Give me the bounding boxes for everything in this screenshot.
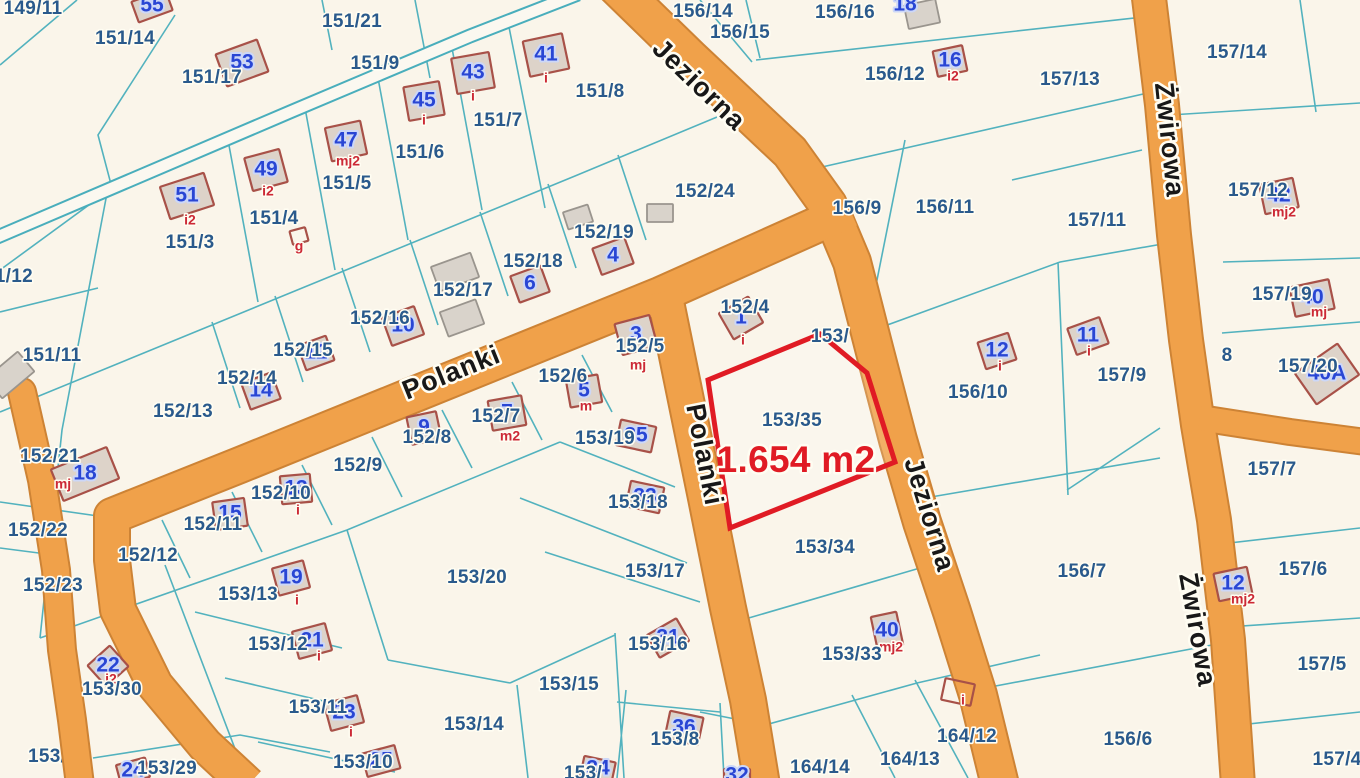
- parcel-label: 151/11: [23, 345, 82, 366]
- building-type-label: i: [317, 648, 321, 664]
- parcel-label: 152/15: [273, 340, 333, 361]
- building-number-label: 32: [725, 764, 748, 778]
- parcel-label: 153/18: [608, 492, 668, 513]
- parcel-label: 152/18: [503, 251, 563, 272]
- building-number-label: 47: [334, 129, 357, 152]
- building-type-label: i: [349, 724, 353, 740]
- building-type-label: m2: [500, 428, 520, 444]
- parcel-label: 153/: [811, 326, 850, 347]
- parcel-label: 153/: [564, 763, 603, 778]
- building-type-label: g: [295, 238, 304, 254]
- parcel-label: 153/17: [625, 561, 685, 582]
- parcel-label: 157/19: [1252, 284, 1312, 305]
- parcel-label: 157/11: [1068, 210, 1127, 231]
- parcel-label: 153/20: [447, 567, 507, 588]
- building-number-label: 49: [254, 158, 277, 181]
- building-type-label: i2: [262, 183, 274, 199]
- parcel-label: 156/10: [948, 382, 1008, 403]
- parcel-label: 156/15: [710, 22, 770, 43]
- parcel-label: 152/22: [8, 520, 68, 541]
- building-type-label: mj2: [336, 153, 360, 169]
- parcel-label: 153/12: [248, 634, 308, 655]
- building-type-label: i2: [184, 212, 196, 228]
- parcel-label: 152/21: [20, 446, 80, 467]
- building-type-label: mj: [1311, 304, 1327, 320]
- parcel-label: 151/5: [322, 173, 371, 194]
- building-type-label: i: [961, 692, 965, 708]
- parcel-label: 153/16: [628, 634, 688, 655]
- parcel-label: 164/14: [790, 757, 850, 778]
- building-type-label: mj2: [1231, 591, 1255, 607]
- parcel-label: 153/34: [795, 537, 855, 558]
- building-footprint: [647, 204, 673, 222]
- building-type-label: i: [296, 502, 300, 518]
- building-number-label: 12: [985, 339, 1008, 362]
- parcel-label: 151/9: [350, 53, 399, 74]
- building-type-label: i: [295, 592, 299, 608]
- building-type-label: m: [580, 398, 592, 414]
- parcel-label: 152/7: [471, 406, 520, 427]
- parcel-label: 152/16: [350, 308, 410, 329]
- parcel-label: 153/29: [137, 758, 197, 778]
- parcel-label: 153/30: [82, 679, 142, 700]
- parcel-label: 153/35: [762, 410, 822, 431]
- parcel-label: 157/7: [1247, 459, 1296, 480]
- parcel-label: 156/11: [916, 197, 975, 218]
- parcel-label: 151/17: [182, 67, 242, 88]
- parcel-label: 152/9: [333, 455, 382, 476]
- parcel-label: 151/4: [249, 208, 298, 229]
- parcel-label: 149/11: [4, 0, 63, 19]
- building-type-label: i: [471, 88, 475, 104]
- building-number-label: 55: [140, 0, 164, 17]
- parcel-label: 151/6: [395, 142, 444, 163]
- parcel-label: 152/24: [675, 181, 735, 202]
- parcel-label: 151/7: [473, 110, 522, 131]
- parcel-label: 157/4: [1312, 749, 1360, 770]
- building-number-label: 51: [175, 184, 199, 207]
- parcel-label: 153/10: [333, 752, 393, 773]
- parcel-label: 151/14: [95, 28, 155, 49]
- parcel-label: 152/8: [402, 427, 451, 448]
- map-canvas[interactable]: 153/31 555341i43i45i47mj249i251i2g461012…: [0, 0, 1360, 778]
- building-type-label: mj2: [879, 639, 903, 655]
- cadastral-map-view: 153/31 555341i43i45i47mj249i251i2g461012…: [0, 0, 1360, 778]
- parcel-label: 152/23: [23, 575, 83, 596]
- building-type-label: i: [544, 70, 548, 86]
- building-type-label: mj2: [1272, 204, 1296, 220]
- parcel-label: 164/13: [880, 749, 940, 770]
- building-number-label: 4: [607, 244, 619, 267]
- parcel-label: 157/13: [1040, 69, 1100, 90]
- building-number-label: 45: [412, 89, 436, 112]
- parcel-label: 151/12: [0, 266, 33, 287]
- building-number-label: 43: [461, 61, 484, 84]
- parcel-label: 152/13: [153, 401, 213, 422]
- parcel-label: 153/33: [822, 644, 882, 665]
- parcel-label: 152/12: [118, 545, 178, 566]
- parcel-label: 153/14: [444, 714, 504, 735]
- parcel-label: 157/6: [1278, 559, 1327, 580]
- parcel-label: 152/10: [251, 483, 311, 504]
- parcel-label: 157/20: [1278, 356, 1338, 377]
- parcel-label: 152/17: [433, 280, 493, 301]
- building-number-label: 41: [534, 43, 558, 66]
- parcel-label: 153/13: [218, 584, 278, 605]
- parcel-label: 156/9: [832, 198, 881, 219]
- parcel-label: 152/6: [538, 366, 587, 387]
- parcel-label: 152/4: [720, 297, 769, 318]
- parcel-label: 153/8: [650, 729, 699, 750]
- parcel-label: 151/8: [575, 81, 624, 102]
- building-shape: [647, 204, 673, 222]
- parcel-label: 157/12: [1228, 180, 1288, 201]
- building-type-label: i: [422, 112, 426, 128]
- parcel-label: 151/3: [165, 232, 214, 253]
- parcel-label: 156/14: [673, 1, 733, 22]
- building-type-label: i: [741, 332, 745, 348]
- parcel-label: 157/5: [1297, 654, 1346, 675]
- parcel-label: 152/11: [184, 514, 243, 535]
- building-type-label: mj: [630, 357, 646, 373]
- highlight-area-label: 1.654 m2: [717, 439, 876, 480]
- parcel-label: 164/12: [937, 726, 997, 747]
- building-number-label: 6: [524, 272, 536, 295]
- parcel-label: 153/15: [539, 674, 599, 695]
- parcel-label: 153/19: [575, 428, 635, 449]
- parcel-label: 152/5: [615, 336, 664, 357]
- parcel-label: 157/14: [1207, 42, 1267, 63]
- parcel-label: 8: [1222, 345, 1233, 366]
- building-type-label: i2: [947, 68, 959, 84]
- building-type-label: i: [1087, 343, 1091, 359]
- building-number-label: 19: [279, 566, 302, 589]
- building-type-label: i: [998, 358, 1002, 374]
- building-number-label: 18: [893, 0, 917, 16]
- parcel-label: 156/16: [815, 2, 875, 23]
- parcel-label: 157/9: [1097, 365, 1146, 386]
- parcel-label: 156/12: [865, 64, 925, 85]
- parcel-label: 156/7: [1057, 561, 1106, 582]
- parcel-label: 151/21: [322, 11, 382, 32]
- parcel-label: 152/14: [217, 368, 277, 389]
- parcel-label: 153/11: [289, 697, 348, 718]
- building-type-label: mj: [55, 476, 71, 492]
- parcel-label: 156/6: [1103, 729, 1152, 750]
- parcel-label: 152/19: [574, 222, 634, 243]
